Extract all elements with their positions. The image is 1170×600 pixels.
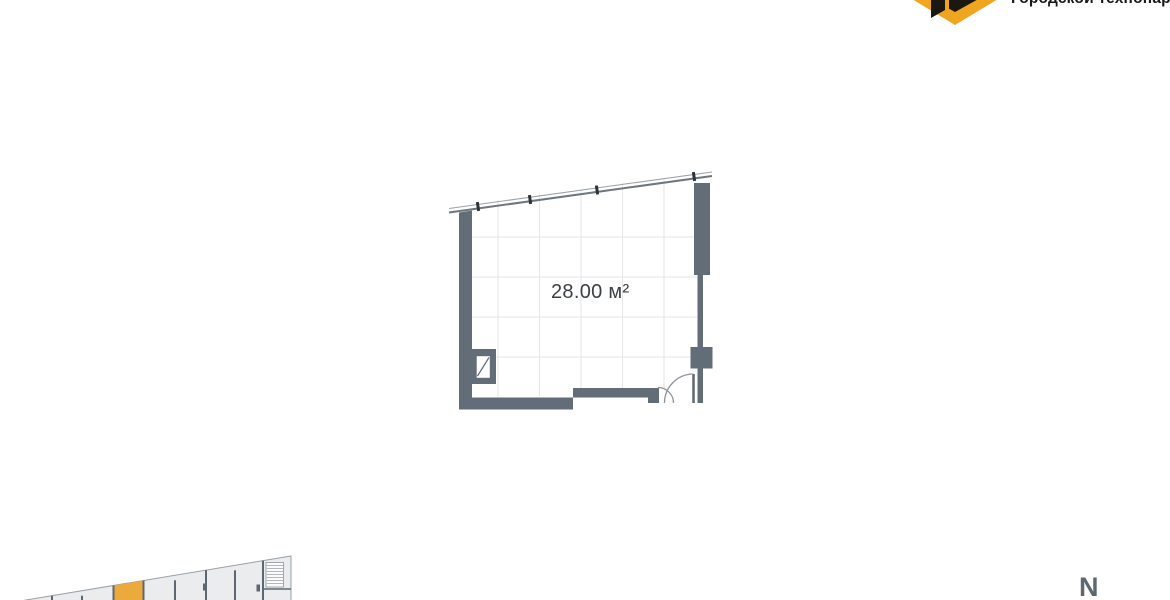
north-indicator: N: [1079, 572, 1099, 600]
wall-left: [459, 211, 472, 410]
area-label: 28.00 м²: [551, 281, 629, 304]
wall-right-thick: [694, 183, 710, 275]
entrance-door: [658, 374, 694, 403]
minimap-highlighted-unit[interactable]: [114, 581, 144, 600]
minimap: [0, 550, 300, 600]
shaft-window: [476, 356, 491, 379]
door-swing-large: [665, 374, 694, 403]
logo-mark-icon: [905, 0, 1005, 27]
minimap-building: [20, 556, 291, 600]
wall-bottom-right: [573, 388, 659, 398]
brand-name: Городской технопарк: [1011, 0, 1170, 8]
wall-right-lower: [698, 369, 704, 404]
door-jamb: [648, 388, 659, 403]
logo[interactable]: [905, 0, 1005, 27]
wall-bottom-left: [459, 398, 573, 410]
page-canvas: Городской технопарк: [0, 0, 1170, 600]
window-mullion-ticks: [477, 172, 694, 211]
column: [691, 347, 713, 369]
wall-right-thin: [698, 275, 704, 347]
